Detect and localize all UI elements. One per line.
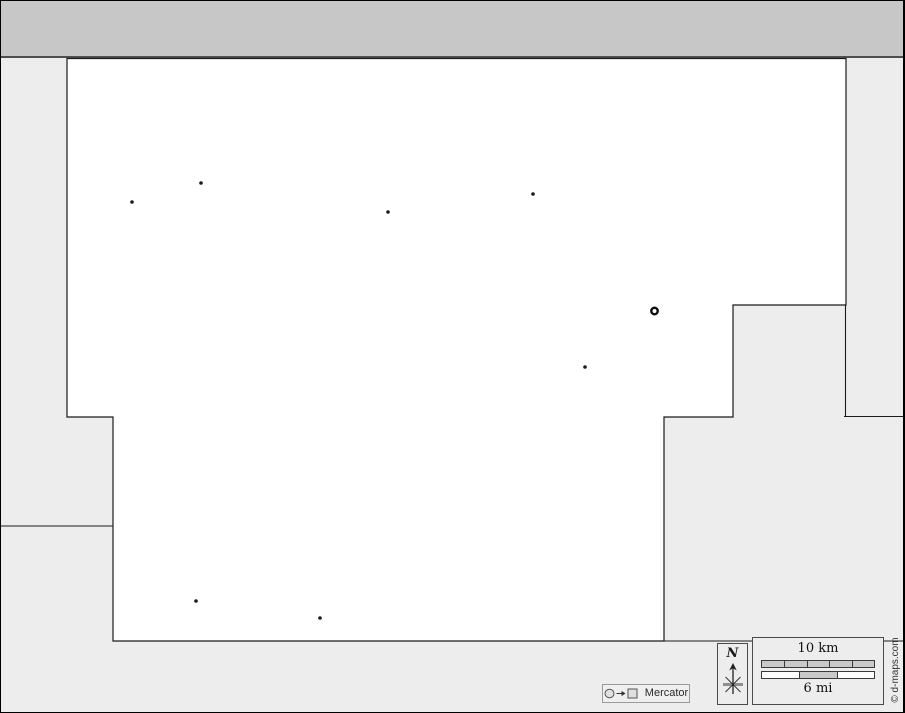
scale-bar-km (761, 660, 875, 668)
city-marker (531, 192, 535, 196)
scale-km-tick (852, 661, 853, 667)
scale-mi-tick (837, 672, 838, 678)
city-marker (130, 200, 134, 204)
projection-symbol-icon (604, 687, 642, 700)
map-canvas (1, 1, 905, 713)
scale-box: 10 km 6 mi (752, 637, 884, 705)
capital-marker (651, 308, 657, 314)
compass-needle-icon (722, 663, 744, 699)
scale-mi-label: 6 mi (753, 681, 883, 696)
city-marker (194, 599, 198, 603)
city-marker (199, 181, 203, 185)
city-marker (318, 616, 322, 620)
region-outline (67, 59, 846, 642)
map-screenshot-root: N 10 km 6 mi Mercator © d-maps.com (0, 0, 905, 713)
scale-km-tick (784, 661, 785, 667)
scale-km-tick (829, 661, 830, 667)
scale-bar-mi (761, 671, 875, 679)
credit-text: © d-maps.com (890, 631, 902, 709)
projection-box: Mercator (602, 684, 690, 703)
scale-mi-filled-segment (799, 672, 836, 678)
scale-km-tick (807, 661, 808, 667)
projection-label: Mercator (645, 688, 688, 699)
city-marker (386, 210, 390, 214)
scale-mi-tick (799, 672, 800, 678)
scale-km-label: 10 km (753, 641, 883, 656)
compass-north-label: N (718, 646, 747, 662)
city-marker (583, 365, 587, 369)
compass-box: N (717, 643, 748, 705)
